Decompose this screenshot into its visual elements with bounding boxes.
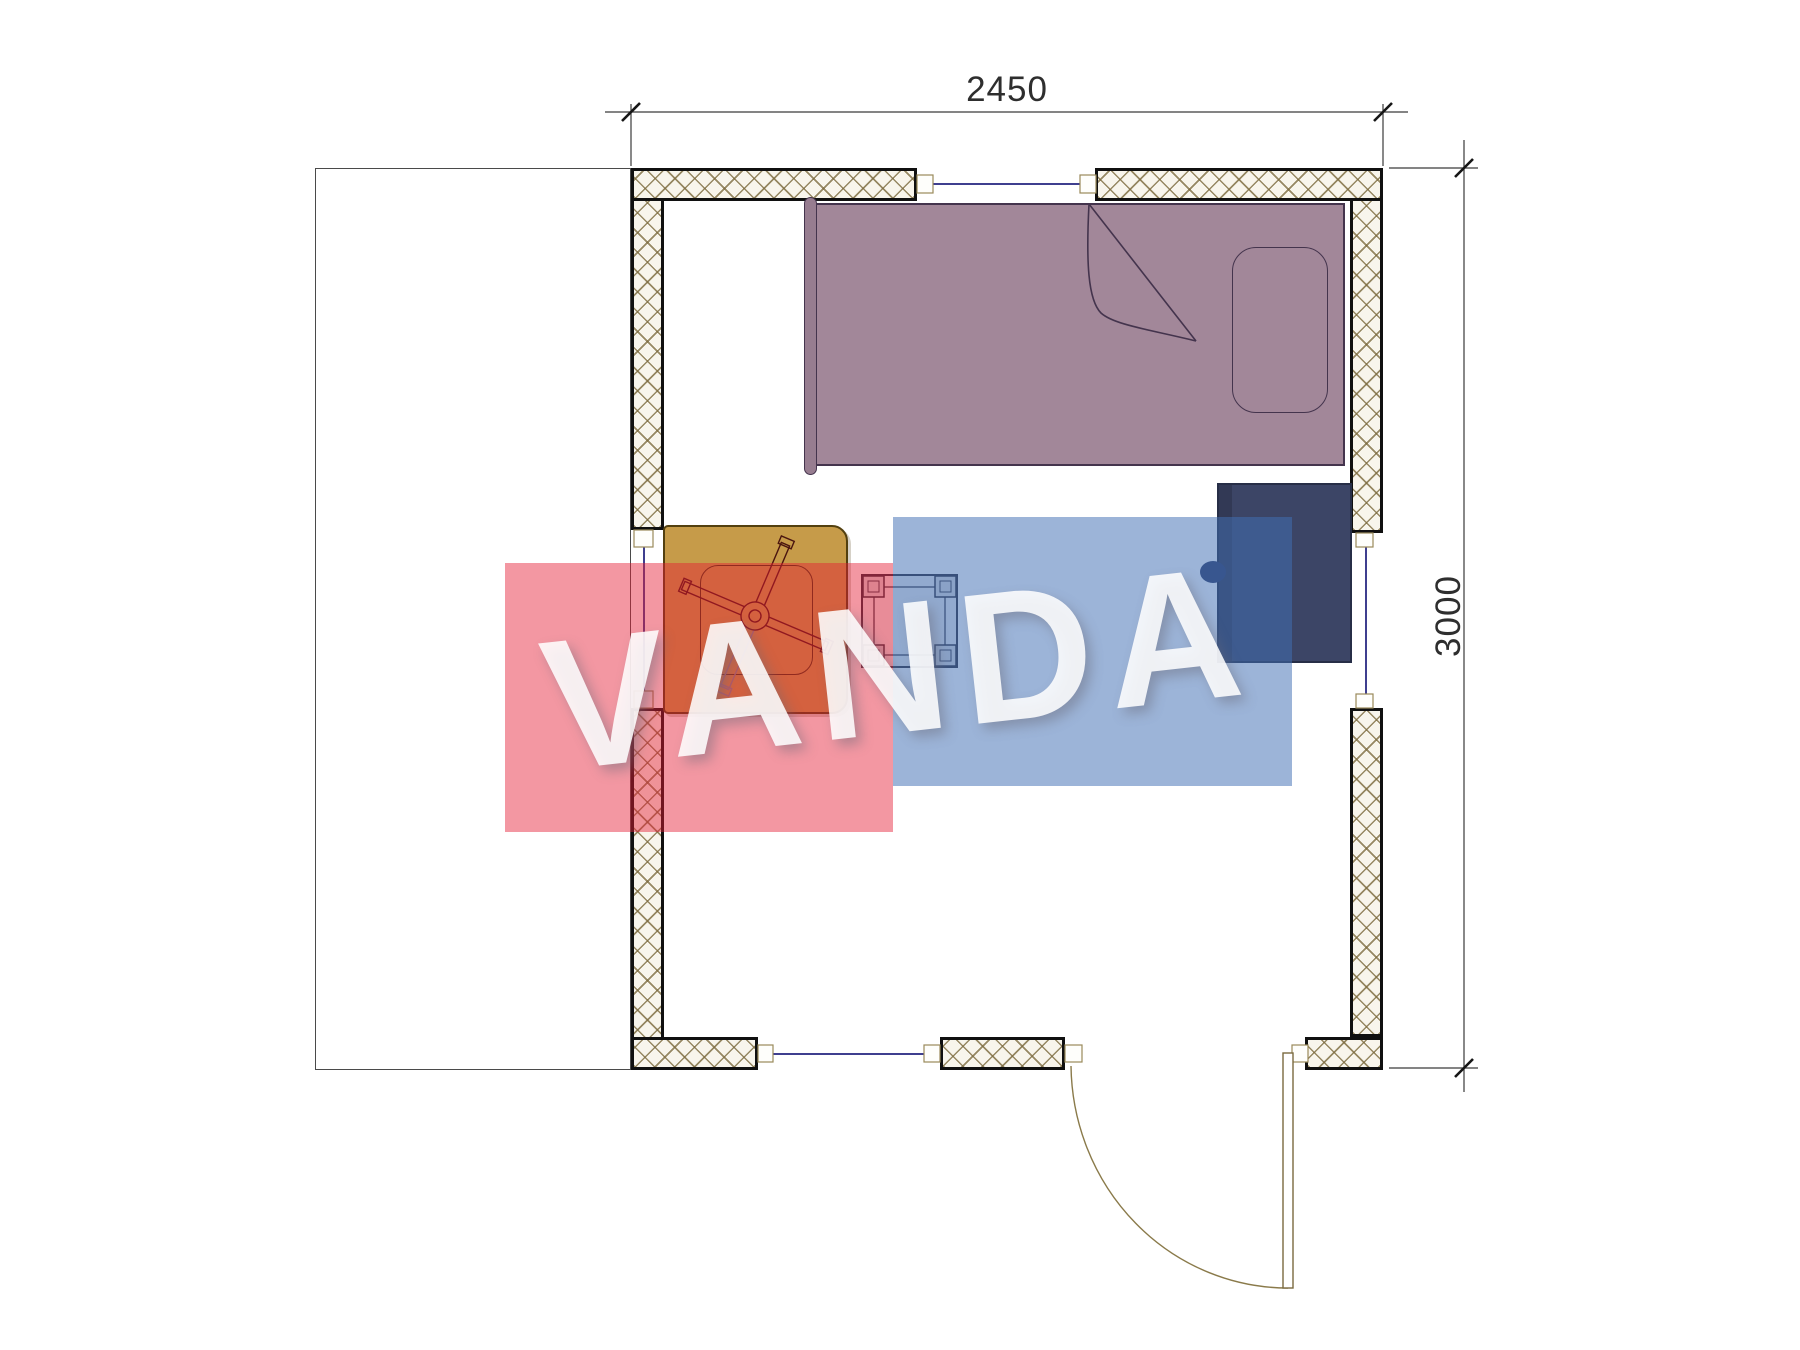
dimension-top [605, 103, 1408, 166]
door-swing-arc [1071, 1066, 1288, 1288]
floor-plan-canvas: 2450 3000 VANDA [0, 0, 1800, 1350]
dimension-height-label: 3000 [1429, 536, 1469, 696]
door-leaf [1283, 1053, 1293, 1288]
bed-blanket-fold [1088, 204, 1196, 341]
window-bottom [758, 1045, 940, 1062]
window-top [917, 175, 1096, 193]
door [1065, 1045, 1308, 1288]
dimension-width-label: 2450 [927, 70, 1087, 110]
window-right [1356, 533, 1373, 708]
